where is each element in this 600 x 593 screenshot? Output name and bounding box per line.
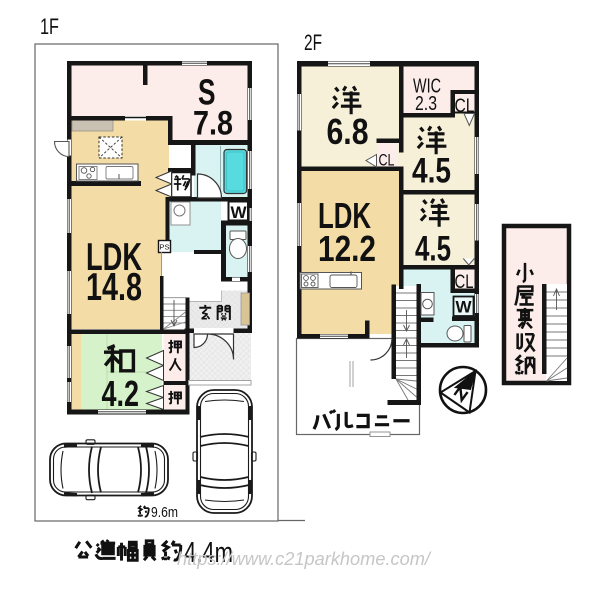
svg-text:14.8: 14.8 — [86, 266, 142, 309]
svg-text:PS: PS — [159, 243, 169, 252]
svg-text:4.5: 4.5 — [415, 229, 451, 269]
svg-text:6.8: 6.8 — [327, 111, 369, 152]
svg-text:2.3: 2.3 — [415, 93, 437, 115]
svg-text:W: W — [230, 203, 247, 222]
svg-text:https://www.c21parkhome.com/: https://www.c21parkhome.com/ — [177, 548, 432, 569]
svg-text:2F: 2F — [304, 30, 322, 55]
svg-text:1F: 1F — [40, 14, 59, 39]
svg-text:CL: CL — [455, 272, 474, 293]
svg-text:9.6m: 9.6m — [151, 504, 178, 521]
svg-text:4.2: 4.2 — [102, 373, 140, 414]
svg-text:12.2: 12.2 — [318, 228, 376, 269]
svg-text:CL: CL — [379, 151, 395, 170]
svg-text:4.5: 4.5 — [412, 151, 451, 191]
svg-text:7.8: 7.8 — [193, 105, 233, 143]
svg-text:W: W — [455, 298, 472, 317]
svg-text:CL: CL — [455, 96, 475, 117]
